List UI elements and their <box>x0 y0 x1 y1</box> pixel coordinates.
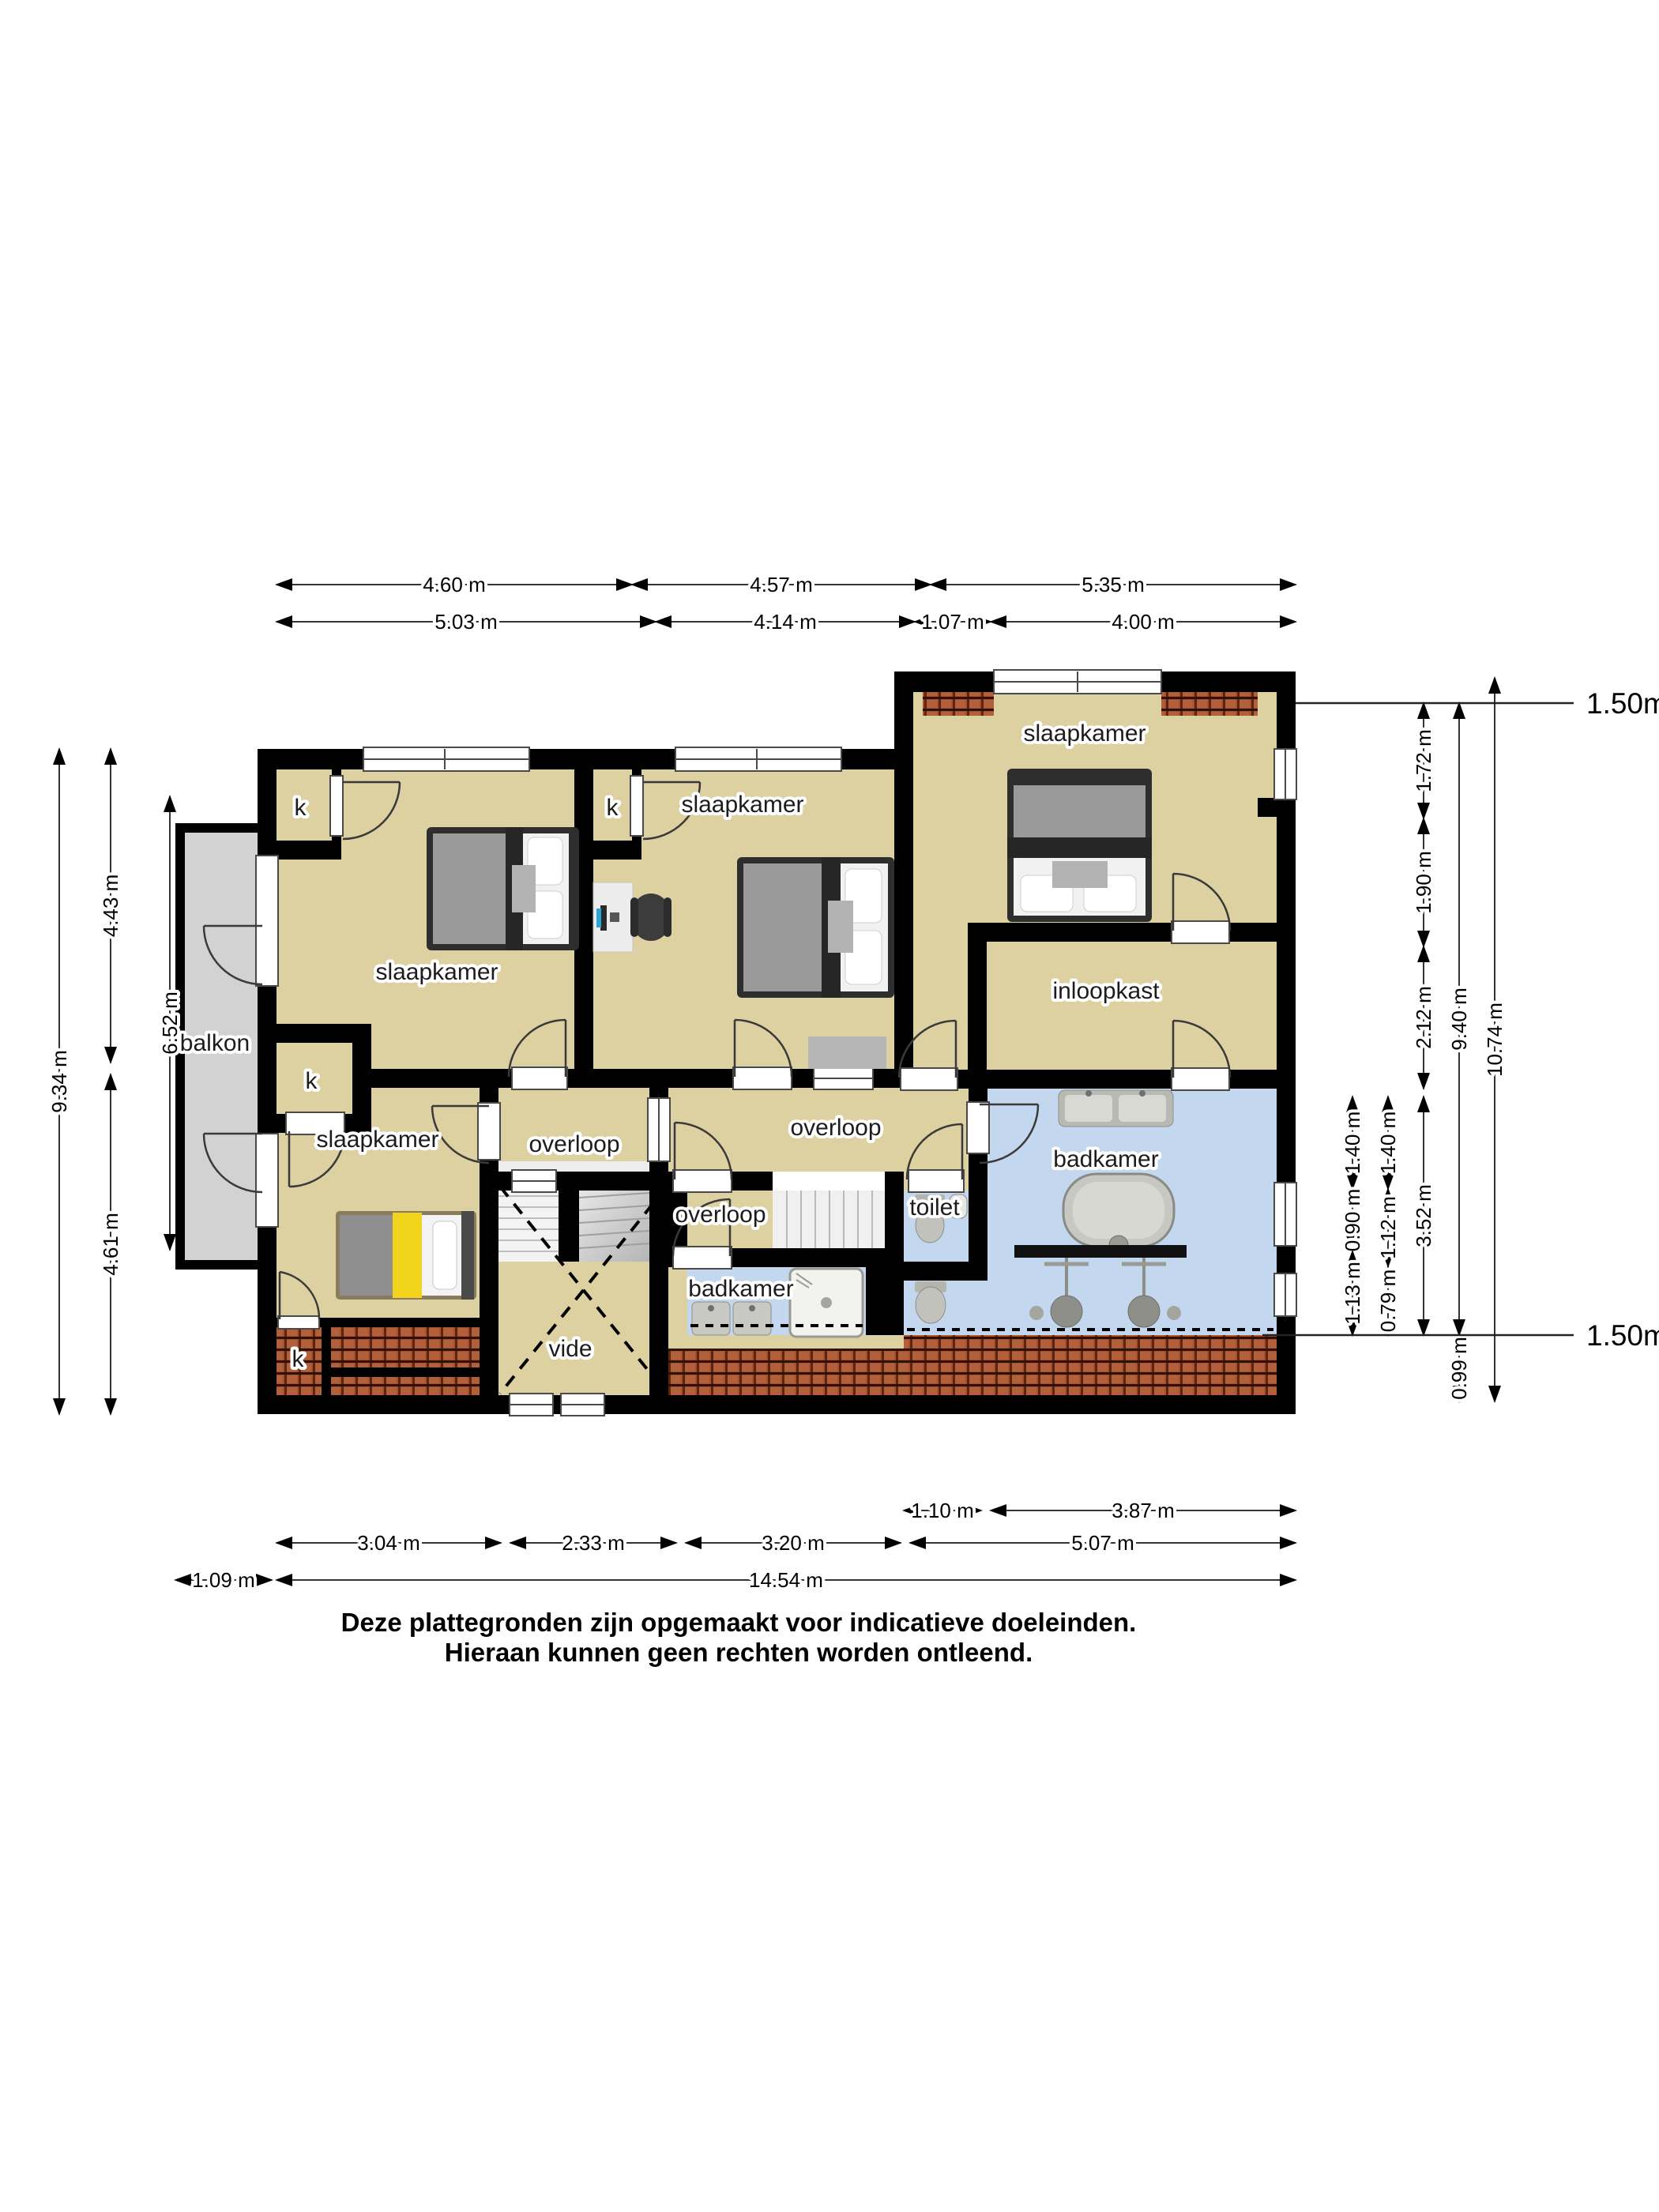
dim-label-v-3: 6.52 m <box>158 991 182 1055</box>
room-label-vide: vide <box>548 1336 592 1362</box>
dim-label-h-14: 14.54 m <box>749 1568 823 1592</box>
window-bottom-vide-1 <box>510 1394 553 1416</box>
roof-area-topright-1 <box>923 692 994 716</box>
dim-label-h-6: 4.00 m <box>1112 610 1175 634</box>
dim-label-v-11: 1.90 m <box>1412 851 1435 914</box>
window-bottom-vide-2 <box>561 1394 604 1416</box>
room-label-slaapkamer-bottomleft: slaapkamer <box>316 1127 438 1153</box>
window-mid-bottom <box>814 1067 873 1089</box>
window-right-badkamer-1 <box>1274 1183 1296 1246</box>
door-gap-inloopkast <box>1172 1068 1229 1090</box>
door-gap-badkamer-small <box>673 1247 732 1269</box>
dim-label-h-11: 3.20 m <box>762 1531 825 1555</box>
door-gap-slaapkamer-middle <box>733 1067 792 1089</box>
door-gap-kast-topleft <box>330 776 343 836</box>
dim-label-h-0: 4.60 m <box>423 573 486 596</box>
closet-label-kast-middle: k <box>607 795 619 821</box>
dim-label-h-12: 5.07 m <box>1071 1531 1134 1555</box>
dim-label-v-15: 0.99 m <box>1447 1337 1471 1400</box>
dim-label-v-9: 0.79 m <box>1376 1270 1400 1333</box>
dim-label-v-16: 10.74 m <box>1483 1003 1507 1077</box>
room-label-badkamer-main: badkamer <box>1053 1146 1158 1172</box>
window-middle <box>675 747 841 771</box>
floorplan-page: slaapkamerslaapkamerslaapkamerslaapkamer… <box>0 0 1659 2212</box>
floorplan-canvas: slaapkamerslaapkamerslaapkamerslaapkamer… <box>0 0 1659 2212</box>
bed-middle <box>737 857 894 998</box>
lijn-label-0: 1.50m lijn <box>1586 687 1659 720</box>
dim-label-h-13: 1.09 m <box>192 1568 255 1592</box>
stair-divider-wall <box>559 1185 579 1262</box>
dim-label-v-7: 1.40 m <box>1376 1112 1400 1175</box>
opening-above-stairs <box>773 1172 885 1191</box>
roof-area-bottomleft <box>276 1327 480 1395</box>
door-gap-overloop <box>673 1170 732 1192</box>
window-topright <box>994 670 1161 694</box>
lijn-label-1: 1.50m lijn <box>1586 1319 1659 1352</box>
window-right-badkamer-2 <box>1274 1273 1296 1316</box>
bed-topright <box>1007 769 1152 922</box>
dim-label-v-10: 1.72 m <box>1412 729 1435 792</box>
dim-label-v-6: 1.13 m <box>1341 1262 1364 1325</box>
desk-chair <box>630 893 671 941</box>
door-gap-slaapkamer-topright <box>1172 921 1229 943</box>
dim-label-v-5: 0.90 m <box>1341 1189 1364 1252</box>
opening-stairwell-rail <box>648 1098 670 1161</box>
door-gap-balkon-1 <box>256 856 278 986</box>
dim-label-h-9: 3.04 m <box>357 1531 420 1555</box>
dim-label-h-5: 1.07 m <box>921 610 984 634</box>
room-label-slaapkamer-topright: slaapkamer <box>1023 720 1145 747</box>
mat-middle-bedroom <box>808 1036 886 1069</box>
bed-topleft <box>427 827 579 950</box>
closet-label-kast-topleft: k <box>295 795 307 821</box>
dim-label-v-13: 3.52 m <box>1412 1184 1435 1247</box>
window-right-bedroom <box>1274 749 1296 799</box>
dim-label-h-7: 1.10 m <box>911 1499 974 1522</box>
door-gap-slaapkamer-bottomleft <box>478 1103 500 1160</box>
dim-label-h-2: 5.35 m <box>1082 573 1145 596</box>
room-label-overloop-landing: overloop <box>529 1131 619 1157</box>
door-gap-strip <box>901 1068 957 1090</box>
dim-label-h-8: 3.87 m <box>1112 1499 1175 1522</box>
closet-label-kast-bottomleft: k <box>292 1346 305 1372</box>
dim-label-v-0: 9.34 m <box>47 1050 71 1113</box>
dim-label-v-8: 1.12 m <box>1376 1196 1400 1259</box>
closet-label-kast-left-mid: k <box>306 1068 318 1094</box>
dim-label-v-2: 4.61 m <box>99 1213 122 1276</box>
roof-area-bottomright <box>904 1335 1277 1395</box>
dim-label-h-3: 5.03 m <box>434 610 498 634</box>
bed-bottomleft <box>336 1211 476 1300</box>
disclaimer-line-1: Deze plattegronden zijn opgemaakt voor i… <box>341 1608 1137 1637</box>
dim-label-v-1: 4.43 m <box>99 875 122 938</box>
opening-stair-top <box>512 1170 556 1192</box>
toilet-badkamer <box>915 1281 946 1323</box>
room-label-slaapkamer-middle: slaapkamer <box>681 792 803 818</box>
room-label-inloopkast: inloopkast <box>1052 978 1160 1004</box>
bathtub <box>1063 1174 1174 1255</box>
room-label-overloop-small: overloop <box>675 1202 766 1228</box>
window-topleft <box>363 747 529 771</box>
dim-label-h-1: 4.57 m <box>750 573 813 596</box>
room-label-badkamer-small: badkamer <box>688 1276 793 1302</box>
roof-area-bottomcenter <box>668 1349 904 1395</box>
room-label-overloop-band: overloop <box>790 1115 881 1141</box>
room-label-slaapkamer-topleft: slaapkamer <box>375 959 498 985</box>
roof-area-topright-2 <box>1161 692 1258 716</box>
door-gap-kast-bottomleft <box>278 1316 319 1329</box>
dim-label-v-14: 9.40 m <box>1447 987 1471 1051</box>
inloopkast-floor <box>987 942 1277 1089</box>
door-gap-balkon-2 <box>256 1134 278 1227</box>
dim-label-h-10: 2.33 m <box>562 1531 625 1555</box>
desk <box>593 882 633 952</box>
room-label-balkon: balkon <box>180 1030 250 1056</box>
disclaimer-line-2: Hieraan kunnen geen rechten worden ontle… <box>445 1638 1033 1667</box>
door-gap-kast-middle <box>630 776 643 836</box>
door-gap-slaapkamer-topleft <box>512 1067 567 1089</box>
room-label-toilet: toilet <box>909 1194 960 1221</box>
dim-label-v-12: 2.12 m <box>1412 986 1435 1049</box>
dim-label-h-4: 4.14 m <box>754 610 817 634</box>
dim-label-v-4: 1.40 m <box>1341 1112 1364 1175</box>
door-gap-toilet <box>908 1170 964 1192</box>
double-sink-unit <box>1059 1090 1173 1127</box>
door-gap-badkamer-main <box>967 1102 989 1153</box>
